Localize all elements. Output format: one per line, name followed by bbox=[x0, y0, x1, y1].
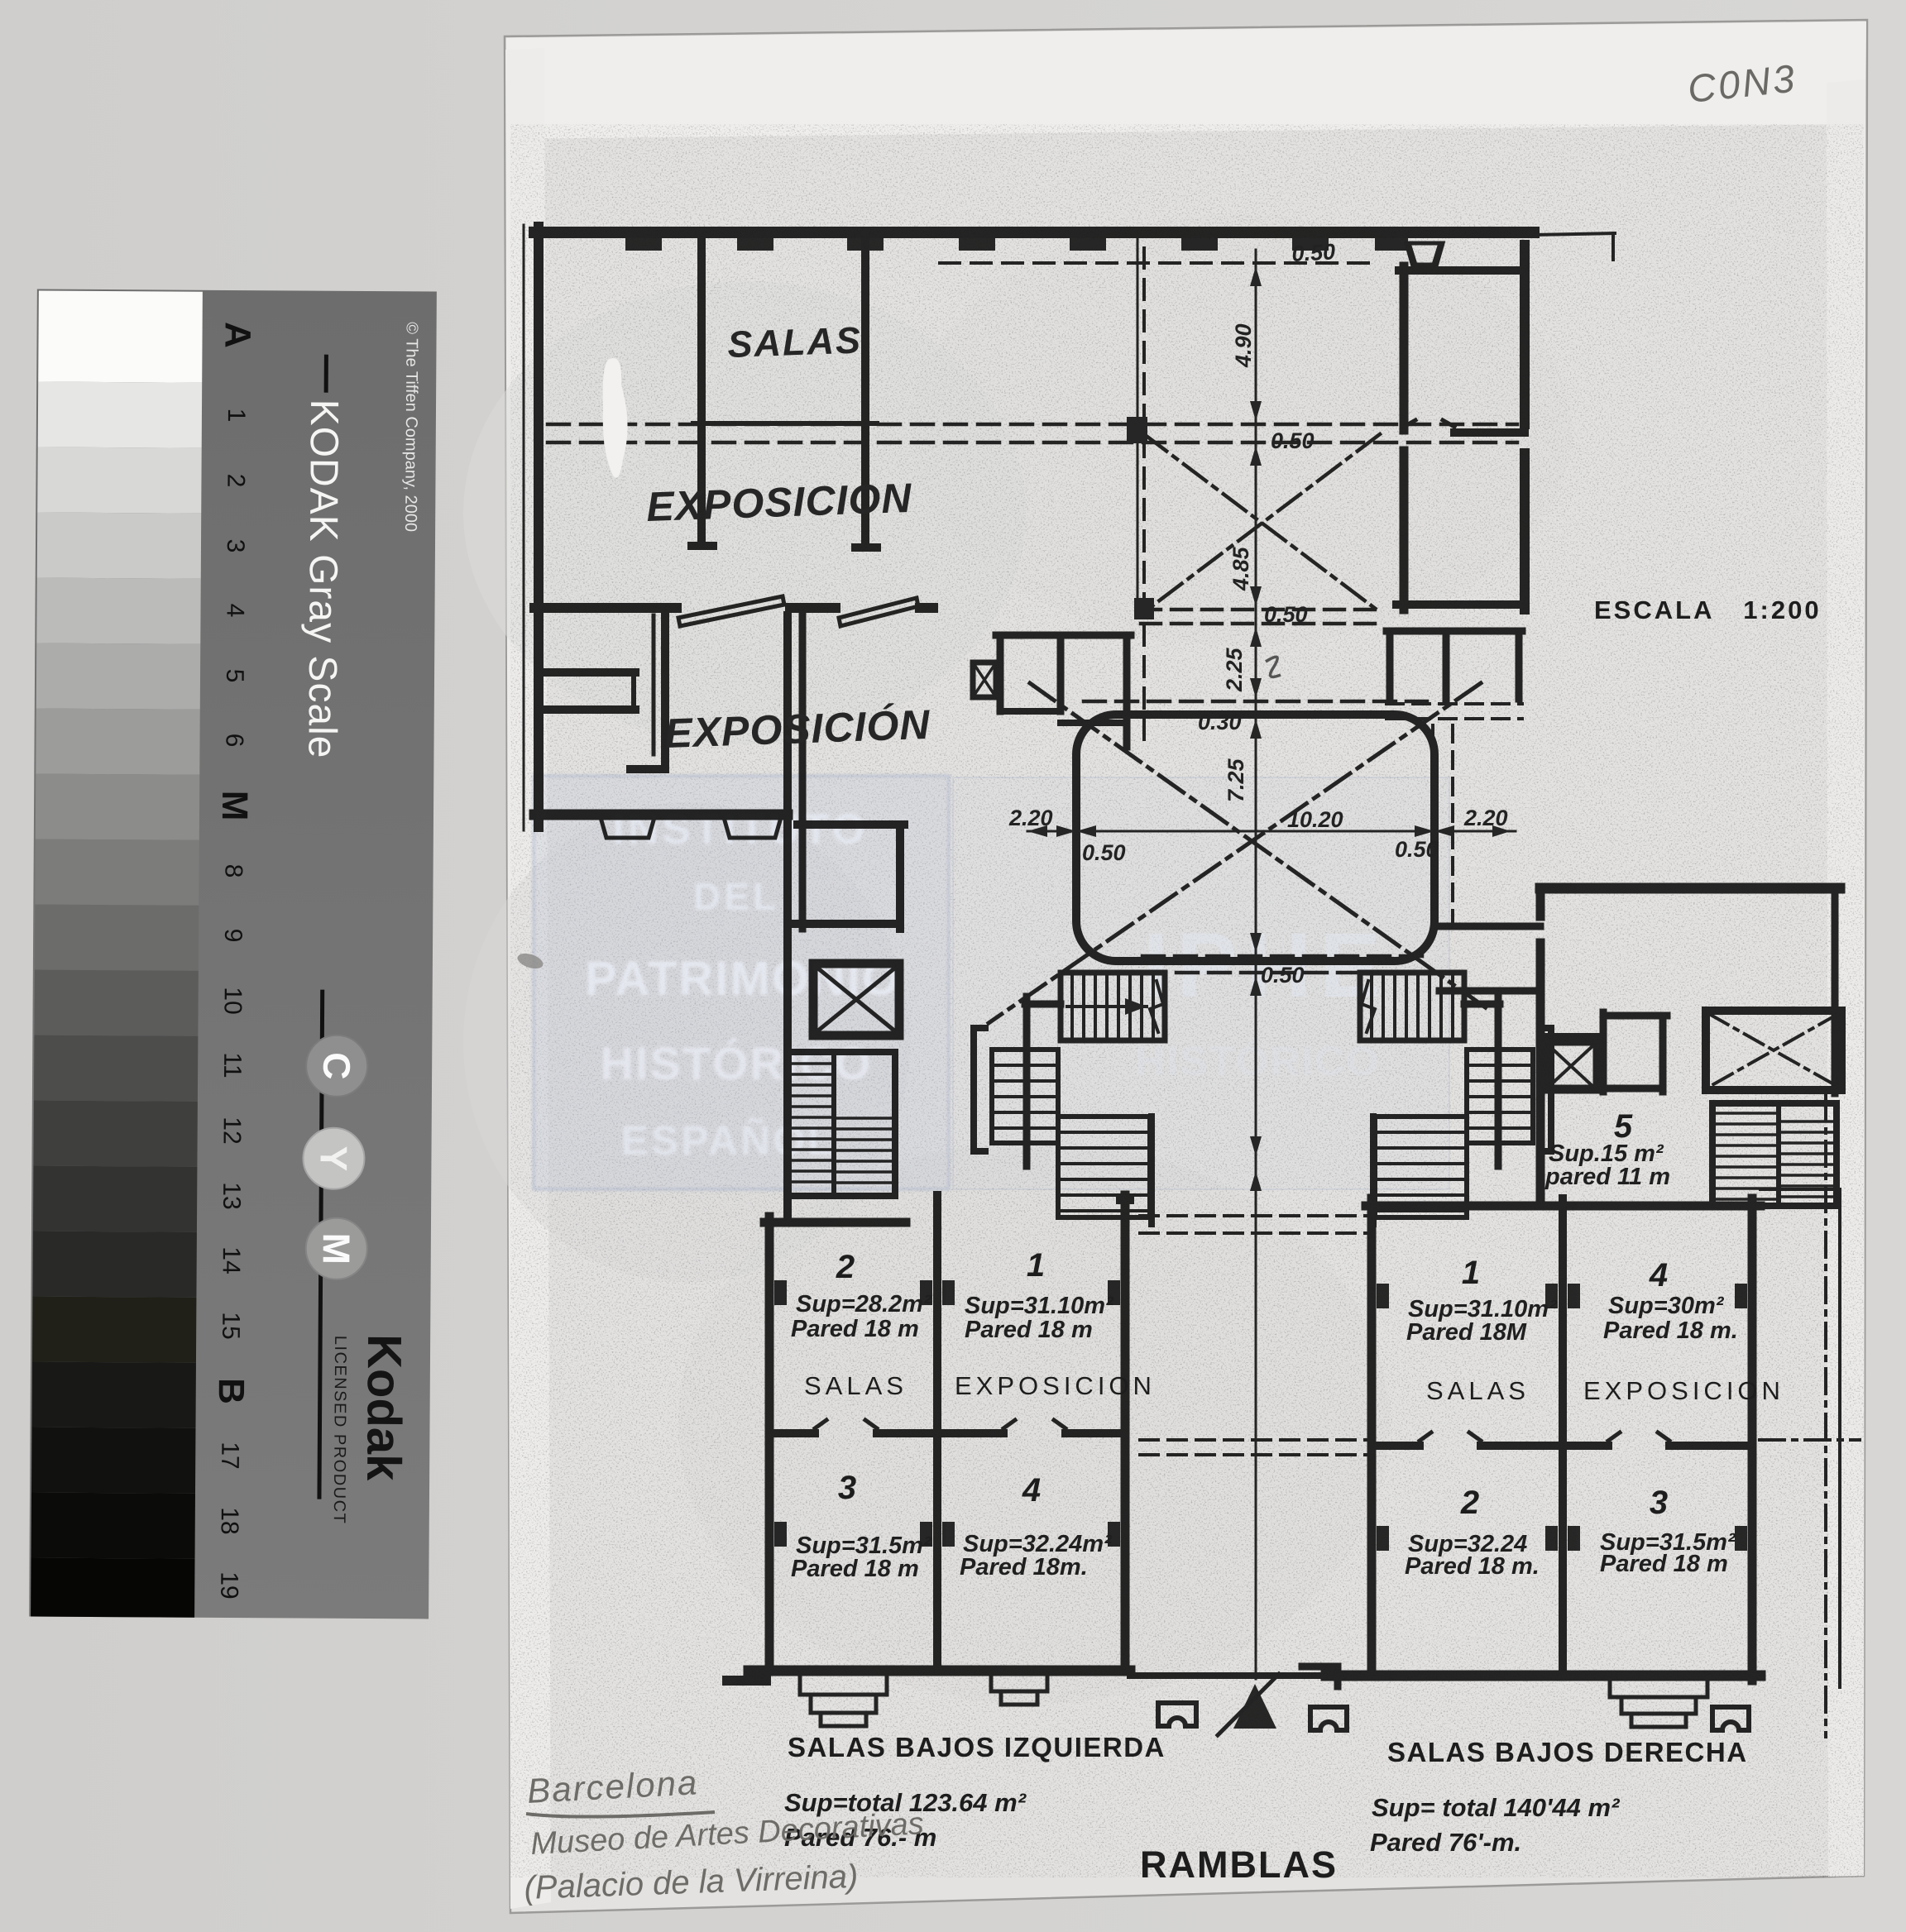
svg-text:SALAS BAJOS DERECHA: SALAS BAJOS DERECHA bbox=[1387, 1737, 1748, 1767]
svg-text:2.20: 2.20 bbox=[1463, 806, 1508, 830]
svg-text:0.50: 0.50 bbox=[1082, 840, 1126, 865]
svg-text:A: A bbox=[217, 322, 257, 348]
svg-text:13: 13 bbox=[218, 1182, 245, 1210]
svg-text:LICENSED PRODUCT: LICENSED PRODUCT bbox=[330, 1336, 349, 1525]
svg-text:ESPAÑOL: ESPAÑOL bbox=[621, 1117, 836, 1164]
svg-text:7.25: 7.25 bbox=[1224, 758, 1248, 802]
svg-text:HISTÓRICO: HISTÓRICO bbox=[1135, 1038, 1380, 1084]
svg-text:3: 3 bbox=[222, 539, 249, 553]
svg-text:4.90: 4.90 bbox=[1231, 323, 1256, 368]
svg-text:6: 6 bbox=[221, 734, 248, 748]
svg-text:1: 1 bbox=[223, 409, 250, 423]
svg-text:3: 3 bbox=[838, 1470, 856, 1506]
svg-text:Pared 18 m: Pared 18 m bbox=[791, 1556, 919, 1582]
svg-text:4.85: 4.85 bbox=[1228, 546, 1253, 591]
svg-text:Pared 18m.: Pared 18m. bbox=[960, 1554, 1088, 1581]
svg-text:EXPOSICIÓN: EXPOSICIÓN bbox=[663, 701, 931, 757]
svg-text:C: C bbox=[315, 1052, 358, 1080]
svg-text:4: 4 bbox=[221, 604, 248, 618]
svg-text:Sup= total 140'44 m²: Sup= total 140'44 m² bbox=[1372, 1793, 1620, 1822]
svg-text:2: 2 bbox=[836, 1249, 855, 1285]
svg-text:0.50: 0.50 bbox=[1261, 963, 1305, 988]
svg-text:1: 1 bbox=[1027, 1247, 1045, 1284]
svg-text:3: 3 bbox=[1650, 1485, 1668, 1521]
svg-text:18: 18 bbox=[216, 1507, 243, 1535]
svg-text:Pared 18 m: Pared 18 m bbox=[965, 1317, 1093, 1343]
svg-text:17: 17 bbox=[216, 1442, 243, 1470]
svg-text:0.50: 0.50 bbox=[1271, 428, 1315, 453]
svg-text:EXPOSICION: EXPOSICION bbox=[645, 475, 912, 530]
svg-text:Pared 18M: Pared 18M bbox=[1406, 1319, 1527, 1346]
svg-text:Sup=31.10m²: Sup=31.10m² bbox=[965, 1293, 1114, 1319]
svg-text:Kodak: Kodak bbox=[357, 1334, 411, 1481]
svg-text:Sup=30m²: Sup=30m² bbox=[1608, 1293, 1725, 1319]
svg-text:15: 15 bbox=[217, 1312, 244, 1340]
svg-text:12: 12 bbox=[218, 1117, 246, 1145]
svg-text:EXPOSICION: EXPOSICION bbox=[1583, 1376, 1784, 1405]
svg-text:DEL: DEL bbox=[693, 875, 779, 918]
svg-text:0.50: 0.50 bbox=[1264, 602, 1308, 627]
svg-text:ESCALA 1:200: ESCALA 1:200 bbox=[1594, 595, 1822, 624]
svg-text:pared 11 m: pared 11 m bbox=[1544, 1164, 1670, 1190]
svg-text:5: 5 bbox=[221, 669, 248, 683]
svg-text:0.50: 0.50 bbox=[1291, 239, 1336, 266]
svg-text:11: 11 bbox=[218, 1052, 246, 1078]
svg-text:Pared 76'-m.: Pared 76'-m. bbox=[1370, 1828, 1521, 1857]
svg-text:10.20: 10.20 bbox=[1287, 807, 1343, 832]
svg-text:Sup=28.2m²: Sup=28.2m² bbox=[796, 1291, 932, 1317]
svg-text:Pared 18 m.: Pared 18 m. bbox=[1603, 1317, 1738, 1344]
svg-text:0.30: 0.30 bbox=[1198, 710, 1242, 734]
svg-text:2: 2 bbox=[222, 474, 249, 488]
svg-text:19: 19 bbox=[215, 1571, 242, 1600]
svg-text:© The Tiffen Company, 2000: © The Tiffen Company, 2000 bbox=[401, 322, 421, 532]
svg-text:Pared 18 m.: Pared 18 m. bbox=[1405, 1553, 1540, 1580]
svg-text:8: 8 bbox=[220, 864, 247, 878]
svg-text:Pared 18 m: Pared 18 m bbox=[791, 1316, 919, 1342]
svg-text:2.25: 2.25 bbox=[1222, 647, 1247, 692]
svg-text:SALAS: SALAS bbox=[727, 318, 863, 366]
svg-text:0.50: 0.50 bbox=[1395, 837, 1439, 862]
svg-text:M: M bbox=[315, 1232, 358, 1265]
svg-text:RAMBLAS: RAMBLAS bbox=[1140, 1844, 1338, 1886]
svg-text:9: 9 bbox=[219, 929, 247, 943]
svg-text:2: 2 bbox=[1460, 1485, 1479, 1521]
svg-text:10: 10 bbox=[219, 987, 247, 1015]
svg-text:14: 14 bbox=[218, 1246, 245, 1274]
svg-text:M: M bbox=[214, 791, 255, 821]
svg-text:Pared 18 m: Pared 18 m bbox=[1600, 1551, 1728, 1577]
svg-text:SALAS: SALAS bbox=[1426, 1376, 1530, 1405]
svg-text:EXPOSICION: EXPOSICION bbox=[955, 1371, 1156, 1400]
svg-text:1: 1 bbox=[1462, 1255, 1480, 1291]
svg-text:Y: Y bbox=[312, 1145, 355, 1171]
svg-text:2.20: 2.20 bbox=[1008, 806, 1053, 830]
svg-text:5: 5 bbox=[1614, 1108, 1633, 1145]
svg-text:4: 4 bbox=[1649, 1257, 1668, 1294]
svg-text:B: B bbox=[211, 1378, 251, 1404]
svg-text:SALAS: SALAS bbox=[804, 1371, 908, 1400]
svg-text:KODAK Gray Scale: KODAK Gray Scale bbox=[299, 399, 346, 759]
svg-text:4: 4 bbox=[1022, 1472, 1041, 1509]
svg-text:SALAS BAJOS IZQUIERDA: SALAS BAJOS IZQUIERDA bbox=[788, 1732, 1166, 1762]
